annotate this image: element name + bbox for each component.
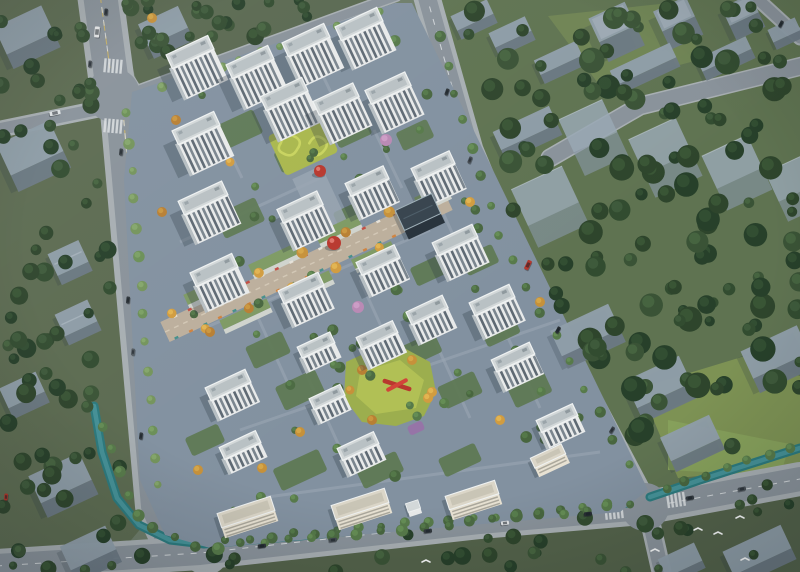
rendering-canvas bbox=[0, 0, 800, 572]
atmosphere-layer bbox=[0, 0, 800, 572]
aerial-masterplan-rendering bbox=[0, 0, 800, 572]
vignette bbox=[0, 0, 800, 572]
